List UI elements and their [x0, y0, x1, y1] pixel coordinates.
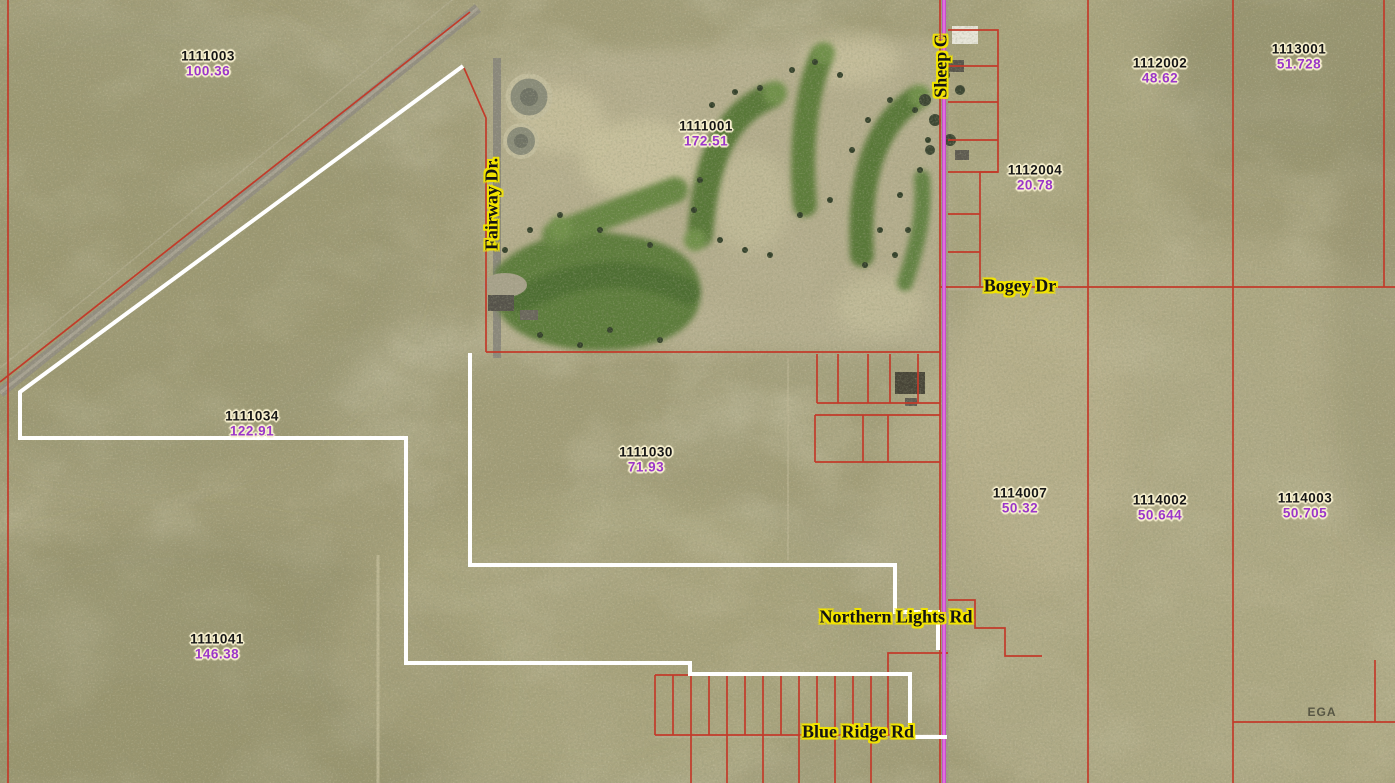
parcel-label-1111034[interactable]: 1111034122.91: [225, 409, 279, 438]
parcel-label-1114003[interactable]: 111400350.705: [1278, 491, 1333, 520]
parcel-id: 1114003: [1278, 491, 1333, 506]
parcel-label-1112002[interactable]: 111200248.62: [1133, 56, 1188, 85]
parcel-acres: 20.78: [1008, 178, 1063, 193]
parcel-acres: 50.32: [993, 501, 1048, 516]
parcel-label-1112004[interactable]: 111200420.78: [1008, 163, 1063, 192]
parcel-id: 1111003: [181, 49, 235, 64]
parcel-id: 1112004: [1008, 163, 1063, 178]
parcel-acres: 146.38: [190, 647, 244, 662]
parcel-id: 1112002: [1133, 56, 1188, 71]
aerial-parcel-map[interactable]: 1111003100.361111001172.51111200248.6211…: [0, 0, 1395, 783]
parcel-acres: 50.705: [1278, 506, 1333, 521]
road-label-fairway-dr: Fairway Dr.: [482, 158, 503, 250]
road-label-bogey-dr: Bogey Dr: [984, 276, 1056, 297]
parcel-label-1113001[interactable]: 111300151.728: [1272, 42, 1327, 71]
parcel-label-1114007[interactable]: 111400750.32: [993, 486, 1048, 515]
parcel-acres: 122.91: [225, 424, 279, 439]
parcel-id: 1114002: [1133, 493, 1188, 508]
parcel-label-1111003[interactable]: 1111003100.36: [181, 49, 235, 78]
parcel-acres: 48.62: [1133, 71, 1188, 86]
parcel-id: 1113001: [1272, 42, 1327, 57]
road-label-blue-ridge-rd: Blue Ridge Rd: [802, 722, 914, 743]
parcel-id: 1111030: [619, 445, 673, 460]
parcel-acres: 71.93: [619, 460, 673, 475]
parcel-label-1114002[interactable]: 111400250.644: [1133, 493, 1188, 522]
parcel-label-1111041[interactable]: 1111041146.38: [190, 632, 244, 661]
parcel-acres: 100.36: [181, 64, 235, 79]
road-label-northern-lights-rd: Northern Lights Rd: [819, 607, 972, 628]
watermark-text: EGA: [1307, 705, 1336, 719]
parcel-id: 1111041: [190, 632, 244, 647]
road-label-sheep-c: Sheep C: [931, 34, 952, 98]
parcel-id: 1111001: [679, 119, 733, 134]
parcel-acres: 51.728: [1272, 57, 1327, 72]
parcel-label-1111001[interactable]: 1111001172.51: [679, 119, 733, 148]
parcel-id: 1114007: [993, 486, 1048, 501]
parcel-acres: 172.51: [679, 134, 733, 149]
parcel-acres: 50.644: [1133, 508, 1188, 523]
parcel-label-1111030[interactable]: 111103071.93: [619, 445, 673, 474]
parcel-id: 1111034: [225, 409, 279, 424]
